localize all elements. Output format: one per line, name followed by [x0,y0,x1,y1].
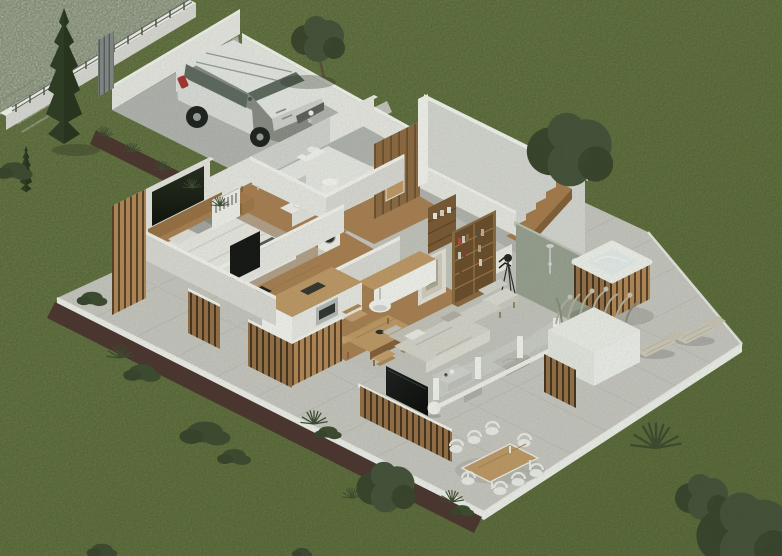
floorplan-stage [0,0,782,556]
floorplan-render [0,0,782,556]
photo-grain [0,0,782,556]
